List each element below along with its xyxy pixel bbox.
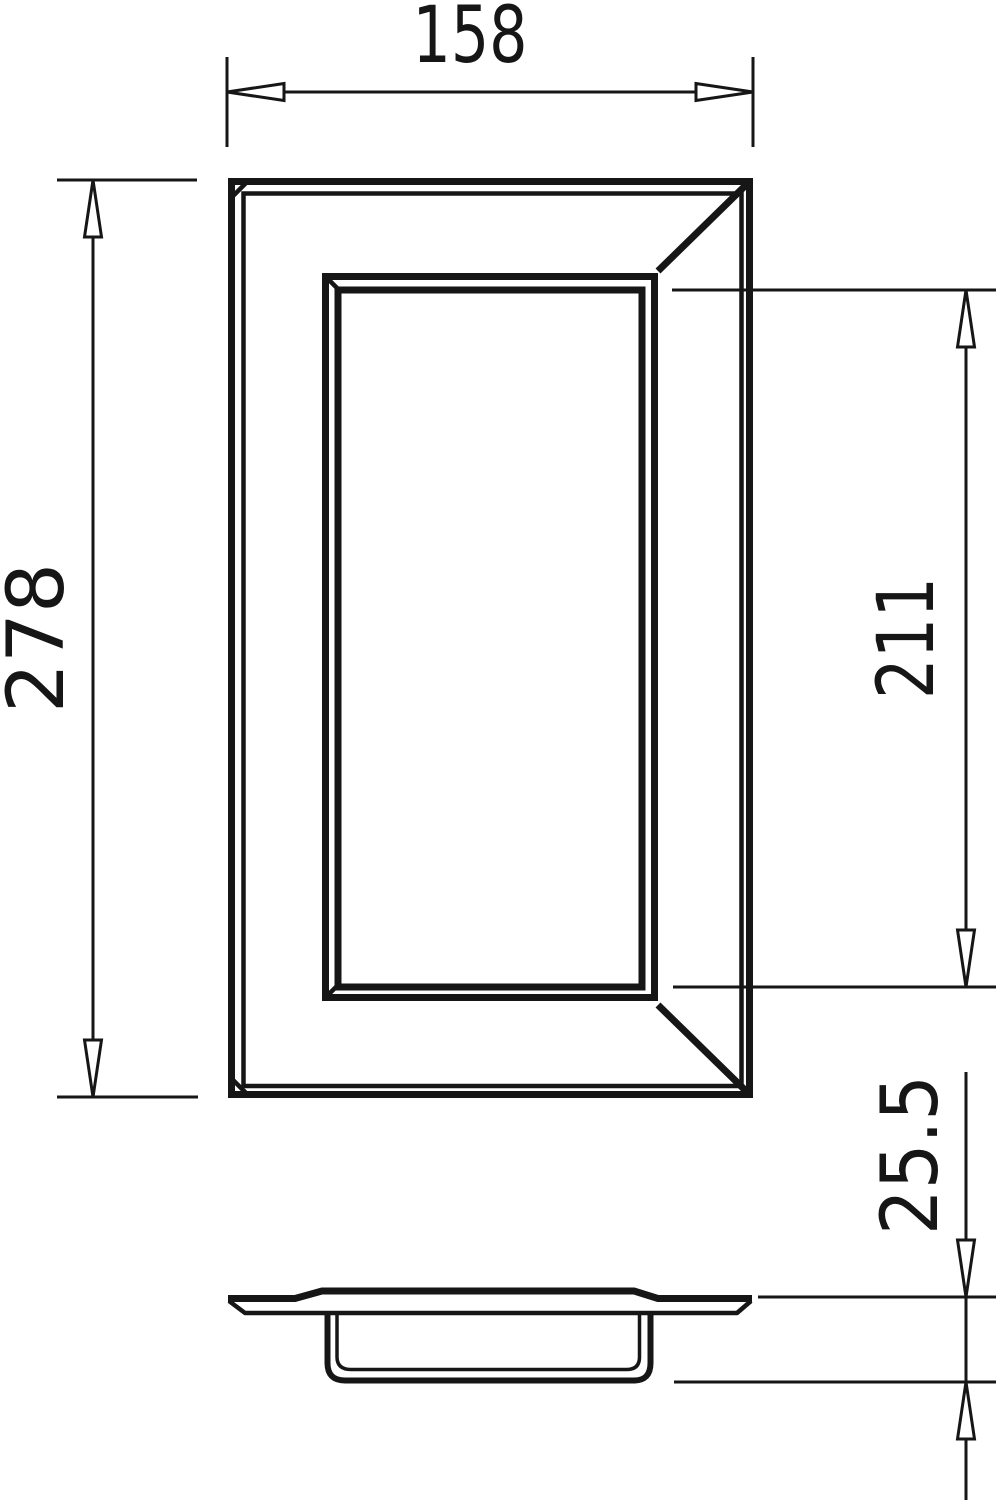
front-inner-frame-inner-edge [338, 290, 642, 987]
dimension-overall-height: 278 [0, 180, 198, 1097]
dimension-label-inner-height: 211 [862, 577, 952, 699]
arrowhead-bottom [958, 930, 975, 987]
dimension-overall-width: 158 [227, 0, 753, 147]
arrowhead-top-outside [958, 1240, 975, 1297]
dimension-label-width: 158 [413, 0, 528, 81]
front-outer-outline [232, 182, 750, 1095]
arrowhead-top [958, 290, 975, 347]
arrowhead-top [85, 180, 102, 237]
arrowhead-bottom [85, 1040, 102, 1097]
arrowhead-left [227, 84, 284, 101]
side-view [228, 1291, 752, 1381]
dimension-depth: 25.5 [674, 1072, 996, 1500]
drawing-svg: 158 278 211 25.5 [0, 0, 1001, 1500]
side-flange-underside [229, 1301, 751, 1313]
front-inner-frame-outer-edge [326, 277, 655, 998]
side-top-profile [228, 1291, 752, 1299]
dimension-label-height: 278 [0, 563, 82, 713]
arrowhead-right [696, 84, 753, 101]
front-outer-rim-inner-edge [244, 194, 742, 1087]
bevel-diagonal-bottom-right [658, 1005, 747, 1092]
front-view [232, 180, 750, 1096]
dimension-label-depth: 25.5 [866, 1075, 956, 1235]
dimension-inner-height: 211 [672, 290, 996, 987]
technical-drawing-canvas: 158 278 211 25.5 [0, 0, 1001, 1500]
arrowhead-bottom-outside [958, 1382, 975, 1439]
side-tray-inner-wall [337, 1313, 640, 1370]
bevel-diagonal-top-right [658, 184, 747, 271]
